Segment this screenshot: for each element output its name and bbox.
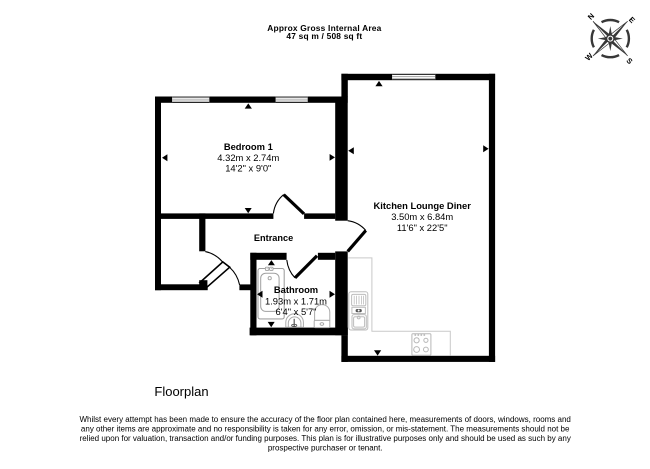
- svg-text:W: W: [583, 51, 595, 63]
- svg-text:4.32m x 2.74m: 4.32m x 2.74m: [217, 152, 279, 163]
- svg-text:1.93m x 1.71m: 1.93m x 1.71m: [265, 296, 327, 307]
- svg-text:11'6" x 22'5": 11'6" x 22'5": [397, 222, 448, 233]
- svg-text:Kitchen Lounge Diner: Kitchen Lounge Diner: [373, 200, 471, 211]
- svg-text:N: N: [586, 11, 596, 21]
- svg-text:Floorplan: Floorplan: [154, 384, 208, 399]
- svg-text:Bathroom: Bathroom: [274, 284, 318, 295]
- svg-text:prospective purchaser or tenan: prospective purchaser or tenant.: [268, 443, 383, 452]
- svg-text:3.50m x 6.84m: 3.50m x 6.84m: [391, 211, 453, 222]
- svg-text:E: E: [627, 15, 637, 25]
- svg-text:6'4" x 5'7": 6'4" x 5'7": [276, 306, 317, 317]
- svg-text:any other items are approximat: any other items are approximate and no r…: [81, 424, 570, 433]
- svg-text:47 sq m / 508 sq ft: 47 sq m / 508 sq ft: [286, 31, 362, 41]
- svg-text:14'2" x 9'0": 14'2" x 9'0": [225, 163, 271, 174]
- svg-text:Bedroom 1: Bedroom 1: [224, 141, 273, 152]
- svg-text:S: S: [625, 56, 635, 66]
- svg-text:relied upon for valuation, tra: relied upon for valuation, transaction a…: [80, 434, 571, 443]
- svg-text:Whilst every attempt has been: Whilst every attempt has been made to en…: [80, 415, 571, 424]
- svg-text:Entrance: Entrance: [254, 233, 293, 243]
